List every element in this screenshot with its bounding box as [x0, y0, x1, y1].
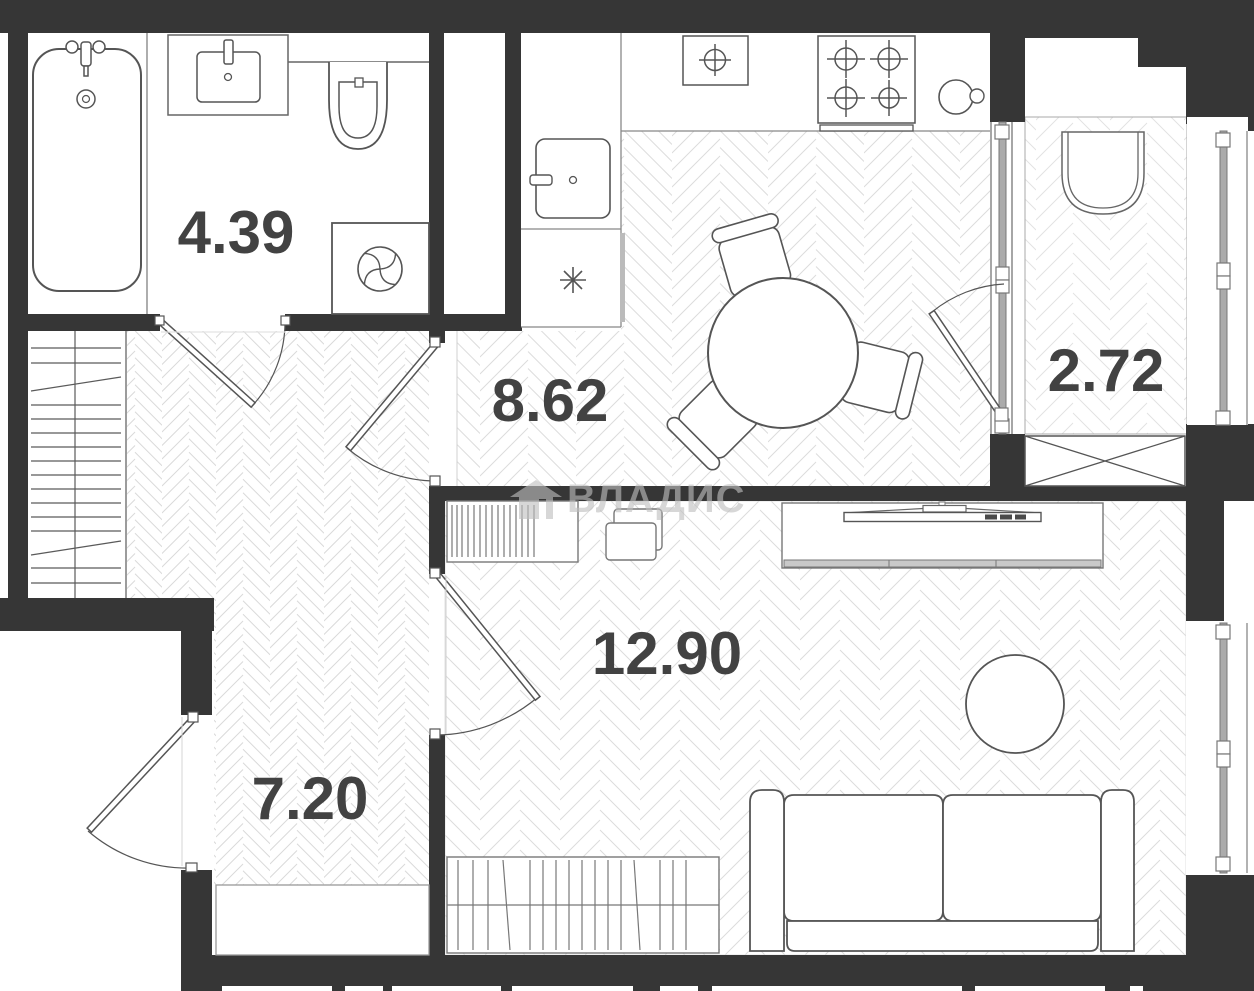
svg-text:12.90: 12.90 — [592, 620, 742, 687]
svg-text:7.20: 7.20 — [252, 765, 369, 832]
svg-text:4.39: 4.39 — [178, 199, 295, 266]
svg-text:2.72: 2.72 — [1048, 337, 1165, 404]
svg-text:8.62: 8.62 — [492, 367, 609, 434]
svg-text:ВЛАДИС: ВЛАДИС — [567, 477, 745, 521]
